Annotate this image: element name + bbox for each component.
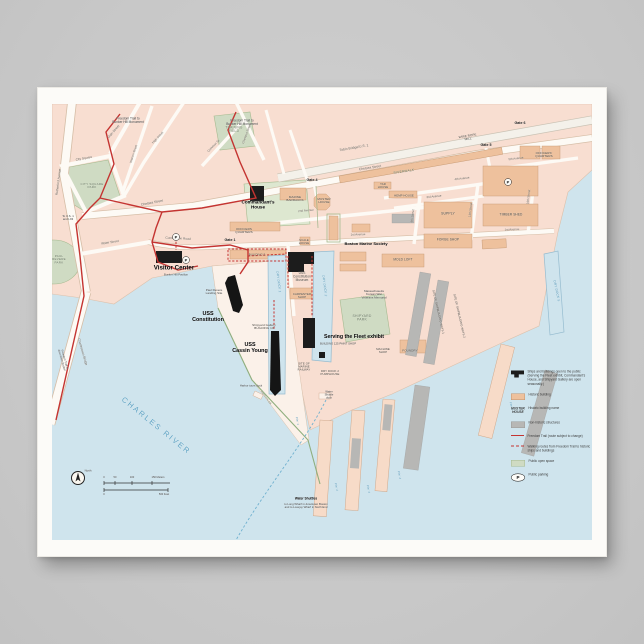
map-label: 13th Street (469, 203, 474, 218)
map-label: to Long Wharf in downtown Boston and to … (284, 503, 327, 509)
map-label: BUILDING 125 PAINT SHOP (320, 342, 356, 345)
boston-marine-society-label: Boston Marine Society (344, 242, 387, 246)
parking-icon: P (504, 178, 512, 186)
map-label: MOLD LOFT (393, 258, 412, 261)
legend-swatch: MUSTER HOUSE (511, 407, 525, 414)
map-label: Pier 2 (334, 483, 338, 492)
map-label: City Square (75, 156, 92, 162)
map-label: North (85, 469, 92, 472)
map-label: 9th Street (411, 209, 416, 222)
map-label: Chestnut Street (242, 124, 252, 145)
map-label: 5th Avenue (508, 156, 523, 161)
legend-item: Public open space (511, 460, 591, 467)
map-label: Chelsea Street (141, 199, 164, 207)
map-label: SUPPLY (441, 212, 455, 216)
map-label: DRY DOCK 5 (552, 280, 560, 302)
map-label: 16th Street (527, 190, 532, 205)
map-label: Harborwalk (260, 390, 272, 405)
legend-label: Historic building (529, 393, 551, 397)
legend-swatch (511, 393, 525, 400)
legend-label: Freedom Trail (route subject to change) (528, 434, 583, 438)
map-label: High Street (152, 131, 165, 144)
map-label: PAUL REVERE PARK (52, 255, 66, 265)
legend-swatch (511, 371, 524, 378)
map-label: Harbor tours dock (240, 384, 262, 387)
map-label: Common St. (207, 139, 221, 153)
map-label: TAR HOUSE (378, 183, 388, 189)
map-label: 100 (130, 477, 134, 480)
map-label: HEMP HOUSE (394, 194, 414, 197)
map-label: 2nd Avenue (298, 209, 314, 214)
poster: Freedom Trail to Bunker Hill MonumentFre… (38, 88, 606, 556)
legend-item: MUSTER HOUSEHistoric building name (511, 406, 591, 414)
commandants-house-label: Commandant's House (242, 200, 275, 210)
legend-label: Ships and buildings open to the public (… (528, 370, 592, 386)
map-label: To U.S. 1 and I-93 (62, 215, 74, 221)
map-label: 1st Avenue (351, 233, 366, 237)
map-label: USS Constitution Museum (293, 272, 311, 282)
map-label: DRY DOCK 2 PUMPHOUSE (321, 370, 340, 376)
uss-cassin-young-label: USS Cassin Young (232, 342, 268, 354)
map-label: MACHINE SHOP (376, 348, 390, 354)
legend-label: Walking routes from Freedom Trail to his… (528, 445, 592, 453)
parking-icon: P (182, 256, 190, 264)
map-label: Gate 1 (225, 238, 236, 242)
map-label: 1st Avenue (505, 228, 520, 232)
map-label: Paul Revere Landing Site (206, 289, 223, 295)
map-label: CITY SQUARE PARK (80, 183, 103, 189)
map-label: SITE OF MARINE RAILWAY (298, 362, 311, 371)
map-label: Tobin Bridge/U.S. 1 (339, 144, 368, 153)
legend-label: Public parking (529, 473, 549, 477)
map-label: Pier 1 (295, 417, 299, 426)
map-label: TIMBER SHED (500, 213, 523, 216)
legend-items: Ships and buildings open to the public (… (511, 370, 591, 482)
map-label: FOUNDRY (402, 349, 417, 352)
map-label: SITE OF SHIPBUILDING WAYS 1 (431, 290, 444, 335)
map-label: Warren Street (130, 145, 139, 164)
map-label: SCALE HOUSE (299, 239, 309, 245)
map-label: Main Street (107, 125, 120, 140)
map-label: 3rd Avenue (426, 195, 441, 200)
map-label: Charlestown Bridge (76, 338, 87, 366)
parking-icon: P (172, 233, 180, 241)
map-label: Water Shuttle dock (325, 390, 334, 399)
map-label: MUSTER HOUSE (317, 198, 330, 204)
map-label: Rutherford Avenue (56, 169, 63, 196)
map-canvas: Freedom Trail to Bunker Hill MonumentFre… (52, 104, 592, 540)
map-label: CARPENTER SHOP (293, 293, 311, 299)
legend-swatch (511, 435, 524, 436)
legend-swatch (511, 460, 525, 467)
map-label: RIVERWALK (393, 169, 414, 176)
map-label: SITE OF SHIPBUILDING WAYS 2 (452, 294, 465, 339)
water-shuttles-label: Water Shuttles (295, 497, 317, 500)
map-label: Pier 4 (397, 471, 401, 480)
map-label: Gate 5 (481, 143, 492, 147)
map-label: Bunker Hill Pavilion (164, 273, 188, 276)
map-label: OFFICERS QUARTERS (235, 228, 252, 234)
map-label: OFFICERS' QUARTERS (535, 152, 552, 158)
map-label: 4th Avenue (454, 176, 469, 181)
legend-item: PPublic parking (511, 473, 591, 482)
map-label: Freedom Trail to downtown Boston (57, 349, 69, 372)
map-label: FORGE SHOP (437, 238, 459, 241)
legend-item: Non-historic structures (511, 421, 591, 428)
map-label: Gate 6 (515, 121, 526, 125)
charles-river-label: CHARLES RIVER (120, 396, 192, 457)
legend-swatch (511, 421, 525, 428)
uss-constitution-label: USS Constitution (192, 311, 224, 323)
map-label: Pier 3 (366, 485, 370, 494)
map-label: Massachusetts Korean War Veterans Memori… (361, 290, 386, 300)
map-label: WIRE ROPE MILL (459, 133, 478, 142)
page-background: Freedom Trail to Bunker Hill MonumentFre… (0, 0, 644, 644)
map-label: 0 (103, 477, 104, 480)
map-label: 500 Feet (159, 494, 169, 497)
legend-label: Non-historic structures (529, 421, 561, 425)
map-label: MARINE BARRACKS (286, 196, 303, 202)
map-label: Shipyard Gallery BUILDING 10 (252, 324, 276, 330)
legend-item: Walking routes from Freedom Trail to his… (511, 445, 591, 453)
map-label: DRY DOCK 2 (321, 275, 327, 297)
map-label: DRY DOCK 1 (275, 271, 281, 293)
map-label: 50 (114, 477, 117, 480)
legend-item: Historic building (511, 393, 591, 400)
map-label: Gate 4 (307, 178, 318, 182)
map-label: SHIPYARD PARK (352, 314, 371, 321)
map-label: 150 Meters (152, 477, 165, 480)
parking-icon: P (511, 474, 525, 482)
map-label: TRAINING FIELD (225, 127, 242, 134)
legend-item: Ships and buildings open to the public (… (511, 370, 591, 386)
visitor-center-label: Visitor Center (154, 265, 195, 272)
legend: Ships and buildings open to the public (… (511, 370, 591, 488)
map-label: BUILDING 5 (249, 253, 266, 256)
legend-label: Historic building name (528, 406, 559, 410)
map-label: Chelsea Street (359, 164, 382, 171)
legend-item: Freedom Trail (route subject to change) (511, 434, 591, 438)
legend-label: Public open space (529, 460, 555, 464)
map-label: 0 (103, 494, 104, 497)
map-label: Water Street (101, 240, 119, 246)
serving-the-fleet-label: Serving the Fleet exhibit (324, 334, 384, 340)
legend-swatch (511, 445, 524, 446)
